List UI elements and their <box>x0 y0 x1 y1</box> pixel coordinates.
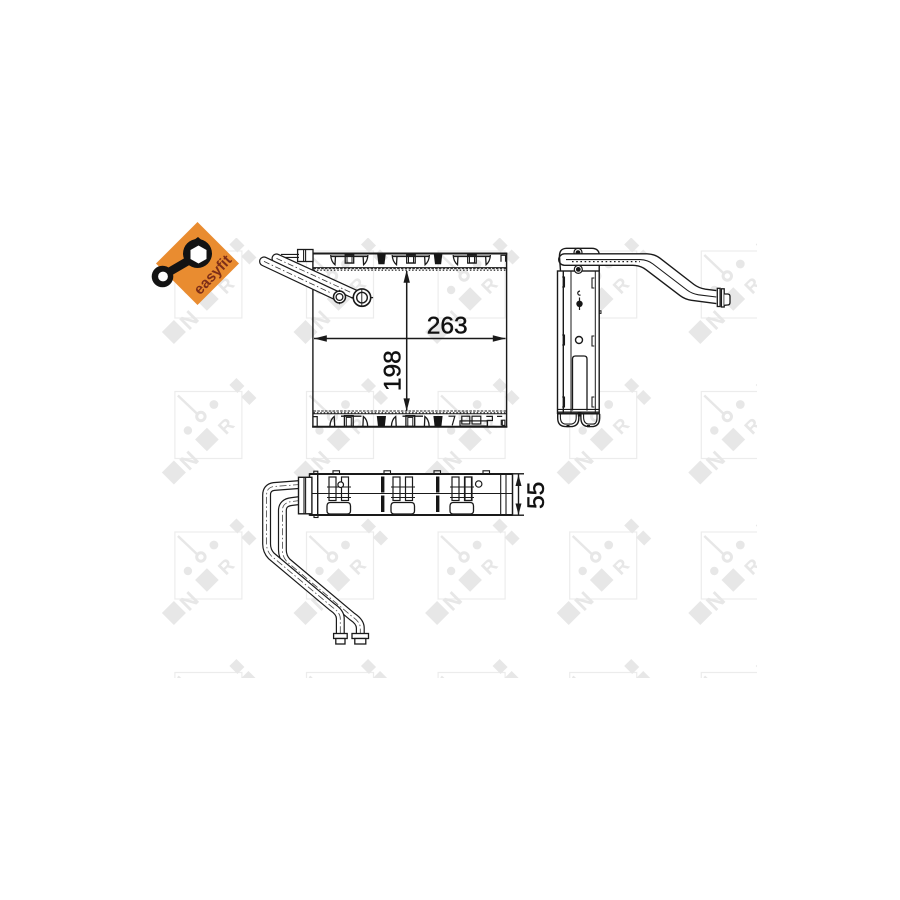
svg-text:198: 198 <box>380 350 407 391</box>
svg-text:263: 263 <box>427 313 468 340</box>
svg-text:55: 55 <box>523 482 550 509</box>
